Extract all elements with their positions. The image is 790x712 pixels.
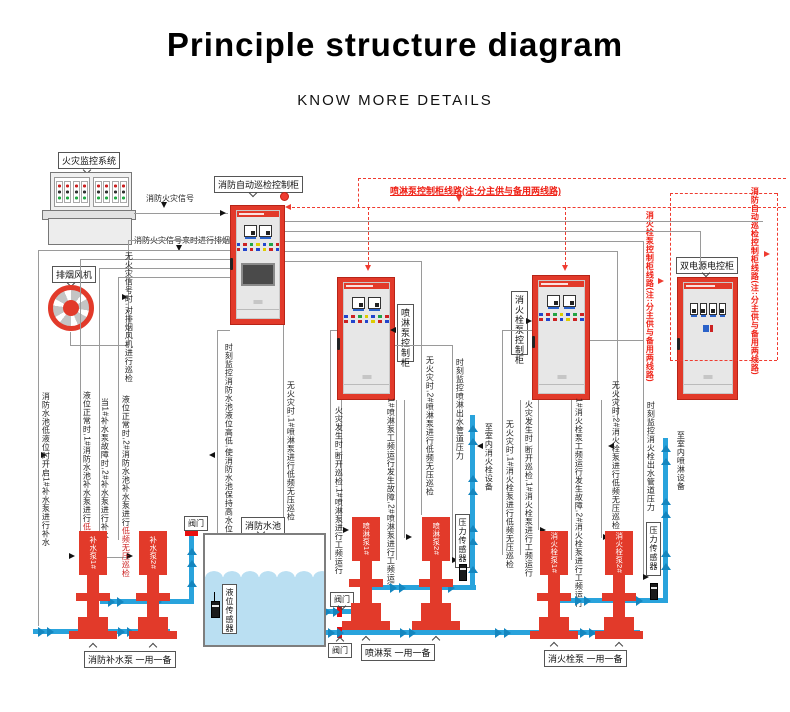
annotation-t6: 时刻监控消防水池液位高低,使消防水池保持高水位 [224,343,232,533]
inspection-cabinet [230,205,285,325]
valve-label: 阀门 [328,643,352,658]
cabinet-handle [532,336,535,348]
level-sensor-label: 液位传感器 [222,584,237,634]
level-sensor-icon [211,601,220,618]
meter-icon [709,303,717,315]
cabinet-handle [677,338,680,350]
page-title: Principle structure diagram [0,26,790,64]
chevron-up-icon [149,643,157,651]
dual-power-cabinet [677,277,738,400]
pressure-sensor-label: 压力传感器 [646,522,661,576]
valve-icon [185,531,198,536]
page-subtitle: KNOW MORE DETAILS [0,92,790,109]
hydrant-pump-1: 消火栓泵1# [530,531,578,639]
pump-label: 补水泵1# [89,536,97,569]
fire-monitor-panel [50,172,132,212]
meter-icon [700,303,708,315]
red-arrow-right-icon [764,251,770,257]
pressure-sensor-icon [650,583,658,600]
indicator-lights [237,248,279,251]
spray-cabinet [337,277,395,400]
arrow-right-icon [220,210,226,216]
chevron-up-icon [615,642,623,650]
cabinet-handle [230,258,233,270]
annotation-t11: 时刻监控喷淋出水管道压力 [455,358,463,460]
indicator-lights [539,318,584,321]
indicator-lights [237,243,279,246]
spray-cabinet-label: 喷淋泵控制柜 [397,304,414,362]
red-arrow-left-icon [285,204,291,210]
meter-icon [244,225,257,237]
spray-pump-2: 喷淋泵2# [412,517,460,630]
exhaust-fan-label: 排烟风机 [52,266,96,283]
switch-device-icon [684,325,732,332]
red-arrow-down-icon [365,265,371,271]
meter-icon [547,295,560,307]
arrow-right-icon [526,318,532,324]
arrow-left-icon [390,327,396,333]
red-arrow-right-icon [658,278,664,284]
meter-icon [690,303,698,315]
hydrant-cabinet [532,275,590,400]
chevron-up-icon [362,636,370,644]
monitor-module [54,177,90,207]
alarm-bulb-icon [280,192,289,201]
annotation-t13: 无火灾时,1#消火栓泵进行低频无压巡检 [505,420,513,569]
pump-label: 消火栓泵2# [615,532,623,573]
annotation-t17: 时刻监控消火栓出水管道压力 [646,401,654,512]
monitor-module [93,177,129,207]
indicator-lights [344,320,389,323]
red-arrow-down-icon [456,196,462,202]
pump-label: 喷淋泵1# [362,522,370,555]
inspection-cabinet-label: 消防自动巡检控制柜 [214,176,303,193]
cabinet-screen [241,263,275,286]
chevron-up-icon [89,643,97,651]
arrow-left-icon [209,452,215,458]
panel-base [48,218,132,245]
red-arrow-down-icon [562,265,568,271]
spray-group-label: 喷淋泵 一用一备 [361,644,435,661]
exhaust-fan-icon [48,285,94,331]
hydrant-pump-2: 消火栓泵2# [595,531,643,639]
valve-label: 阀门 [184,516,208,531]
pressure-sensor-icon [459,564,467,581]
annotation-t10: 无火灾时,2#喷淋泵进行低频无压巡检 [425,356,433,496]
indicator-lights [539,313,584,316]
pump-label: 消火栓泵1# [550,532,558,573]
indicator-lights [344,315,389,318]
spray-pump-1: 喷淋泵1# [342,517,390,630]
hydrant-line-note: 消火栓泵控制柜线路(注:分主供与备用两线路) [645,211,653,382]
hydrant-group-label: 消火栓泵 一用一备 [544,650,627,667]
inspection-line-note: 消防自动巡检控制柜线路(注:分主供与备用两线路) [750,187,758,375]
annotation-t7: 无火灾时,1#喷淋泵进行低频无压巡检 [286,381,294,521]
supply-group-label: 消防补水泵 一用一备 [84,651,176,668]
annotation-t1: 消防水池低液位时开启1#补水泵进行补水 [41,392,49,546]
pump-label: 喷淋泵2# [432,522,440,555]
meter-icon [563,295,576,307]
supply-pump-1: 补水泵1# [69,531,117,639]
annotation-t16: 无火灾时,2#消火栓泵进行低频无压巡检 [611,381,619,530]
annotation-t18: 至室内喷淋设备 [676,431,684,491]
principle-structure-diagram: Principle structure diagram KNOW MORE DE… [0,0,790,712]
annotation-t3: 当1#补水泵故障时,2#补水泵进行补水 [100,398,108,540]
fire-monitor-label: 火灾监控系统 [58,152,120,169]
meter-icon [259,225,272,237]
annotation-t12: 至室内消火栓设备 [484,423,492,491]
meter-icon [352,297,365,309]
chevron-up-icon [550,642,558,650]
annotation-t5: 无火灾信号时,对排烟风机进行巡检 [124,252,132,382]
fire-signal-label: 消防火灾信号 [146,193,194,204]
cabinet-handle [337,338,340,350]
meter-icon [719,303,727,315]
supply-pump-2: 补水泵2# [129,531,177,639]
meter-icon [368,297,381,309]
spray-line-note: 喷淋泵控制柜线路(注:分主供与备用两线路) [390,184,561,197]
arrow-down-icon [161,202,167,208]
chevron-up-icon [432,636,440,644]
tank-fill-riser [189,536,194,604]
pump-label: 补水泵2# [149,536,157,569]
